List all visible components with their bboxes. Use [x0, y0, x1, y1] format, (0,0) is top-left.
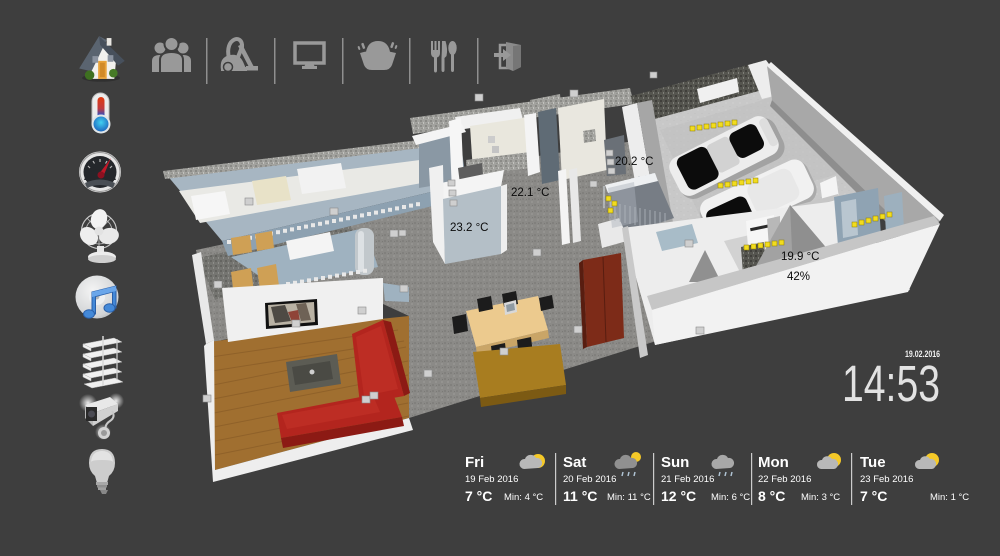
svg-text:Min: 4 °C: Min: 4 °C [504, 492, 543, 503]
svg-text:20 Feb 2016: 20 Feb 2016 [563, 474, 616, 485]
svg-text:22.1 °C: 22.1 °C [511, 187, 549, 199]
svg-text:Min: 11 °C: Min: 11 °C [607, 492, 651, 503]
svg-text:22 Feb 2016: 22 Feb 2016 [758, 474, 811, 485]
svg-text:20.2 °C: 20.2 °C [615, 156, 653, 168]
svg-text:8 °C: 8 °C [758, 488, 785, 504]
svg-text:Tue: Tue [860, 454, 886, 471]
svg-text:19.9 °C: 19.9 °C [781, 251, 819, 263]
svg-text:23 Feb 2016: 23 Feb 2016 [860, 474, 913, 485]
svg-text:Sat: Sat [563, 454, 586, 471]
svg-text:Mon: Mon [758, 454, 789, 471]
svg-text:7 °C: 7 °C [860, 488, 887, 504]
svg-text:Fri: Fri [465, 454, 484, 471]
svg-text:23.2 °C: 23.2 °C [450, 222, 488, 234]
svg-text:42%: 42% [787, 271, 810, 283]
svg-text:21 Feb 2016: 21 Feb 2016 [661, 474, 714, 485]
svg-text:Min: 3 °C: Min: 3 °C [801, 492, 840, 503]
svg-text:14:53: 14:53 [842, 355, 940, 412]
svg-text:11 °C: 11 °C [563, 488, 597, 504]
svg-text:Min: 1 °C: Min: 1 °C [930, 492, 969, 503]
svg-text:19 Feb 2016: 19 Feb 2016 [465, 474, 518, 485]
svg-text:7 °C: 7 °C [465, 488, 492, 504]
svg-text:Min: 6 °C: Min: 6 °C [711, 492, 750, 503]
svg-text:Sun: Sun [661, 454, 689, 471]
svg-text:12 °C: 12 °C [661, 488, 696, 504]
